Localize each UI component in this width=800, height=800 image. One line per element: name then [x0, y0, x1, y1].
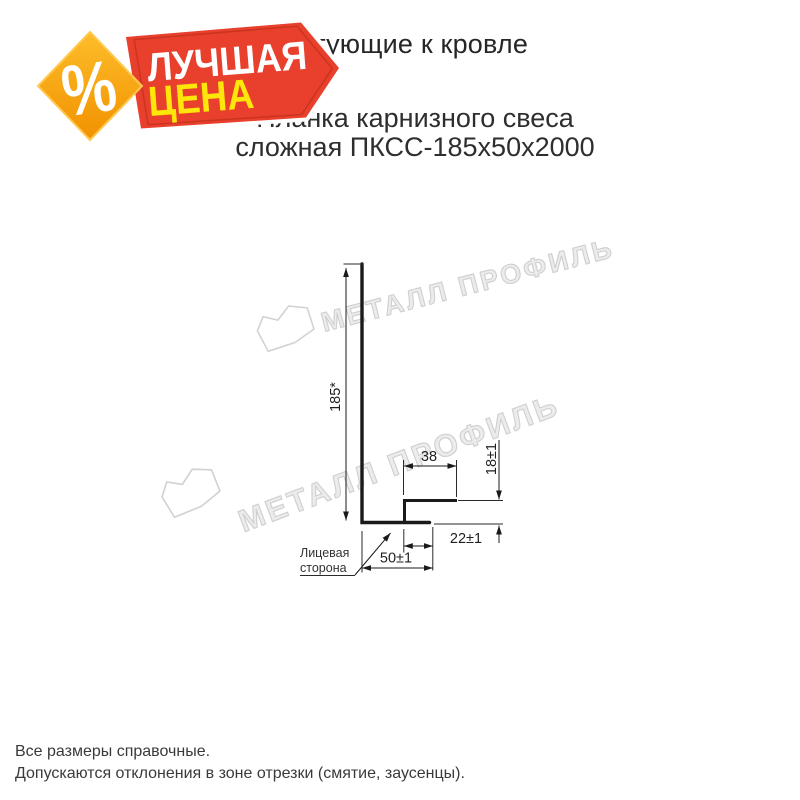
footer-note-line2: Допускаются отклонения в зоне отрезки (с… — [15, 763, 465, 785]
dim-bottom-width-label: 50±1 — [380, 551, 412, 567]
dim-hook-width-label: 38 — [421, 449, 437, 465]
dim-hem-label: 22±1 — [450, 531, 482, 547]
dimension-lines — [346, 268, 499, 575]
dim-hook-height-label: 18±1 — [484, 443, 500, 475]
badge-percent-sign: % — [57, 46, 122, 133]
face-side-label-line1: Лицевая — [300, 546, 349, 560]
extension-lines — [300, 264, 503, 576]
profile-outline — [362, 264, 457, 524]
badge-line2: ЦЕНА — [146, 70, 255, 125]
dim-height-label: 185* — [328, 382, 344, 412]
face-side-label-line2: сторона — [300, 561, 347, 575]
footer-note-line1: Все размеры справочные. — [15, 741, 465, 763]
best-price-badge: % ЛУЧШАЯ ЦЕНА — [0, 0, 360, 160]
footer-notes: Все размеры справочные. Допускаются откл… — [15, 741, 465, 785]
